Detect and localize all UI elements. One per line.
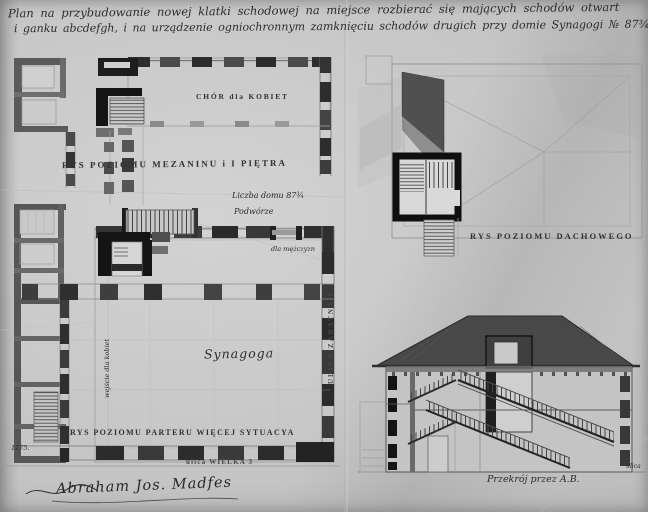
section-edge-note: ulica — [626, 463, 641, 470]
mezzanine-plan-drawing — [14, 57, 331, 205]
womens-choir-room-label: CHÓR dla KOBIET — [196, 92, 289, 101]
ground-plan-drawing — [0, 204, 340, 466]
courtyard-label: Podwórze — [234, 207, 273, 216]
scanned-plan-sheet: Plan na przybudowanie nowej klatki schod… — [0, 0, 648, 512]
archive-number: 1275. — [11, 444, 30, 452]
ground-plan-caption: RYS POZIOMU PARTERU WIĘCEJ SYTUACYA — [70, 428, 295, 437]
synagogue-hall-label: Synagoga — [204, 345, 274, 361]
section-caption: Przekrój przez A.B. — [487, 474, 580, 485]
roof-plan-caption: RYS POZIOMU DACHOWEGO — [470, 231, 634, 241]
mens-entrance-label: dla mężczyzn — [271, 245, 315, 253]
street-right-label: ULICA ZARATNA 1 — [327, 252, 335, 384]
section-drawing — [358, 316, 646, 472]
house-number-label: Liczba domu 87¾ — [232, 191, 304, 200]
womens-entrance-label: wejście dla kobiet — [103, 306, 111, 398]
street-bottom-label: ulica WIELKA 3 — [186, 458, 253, 466]
